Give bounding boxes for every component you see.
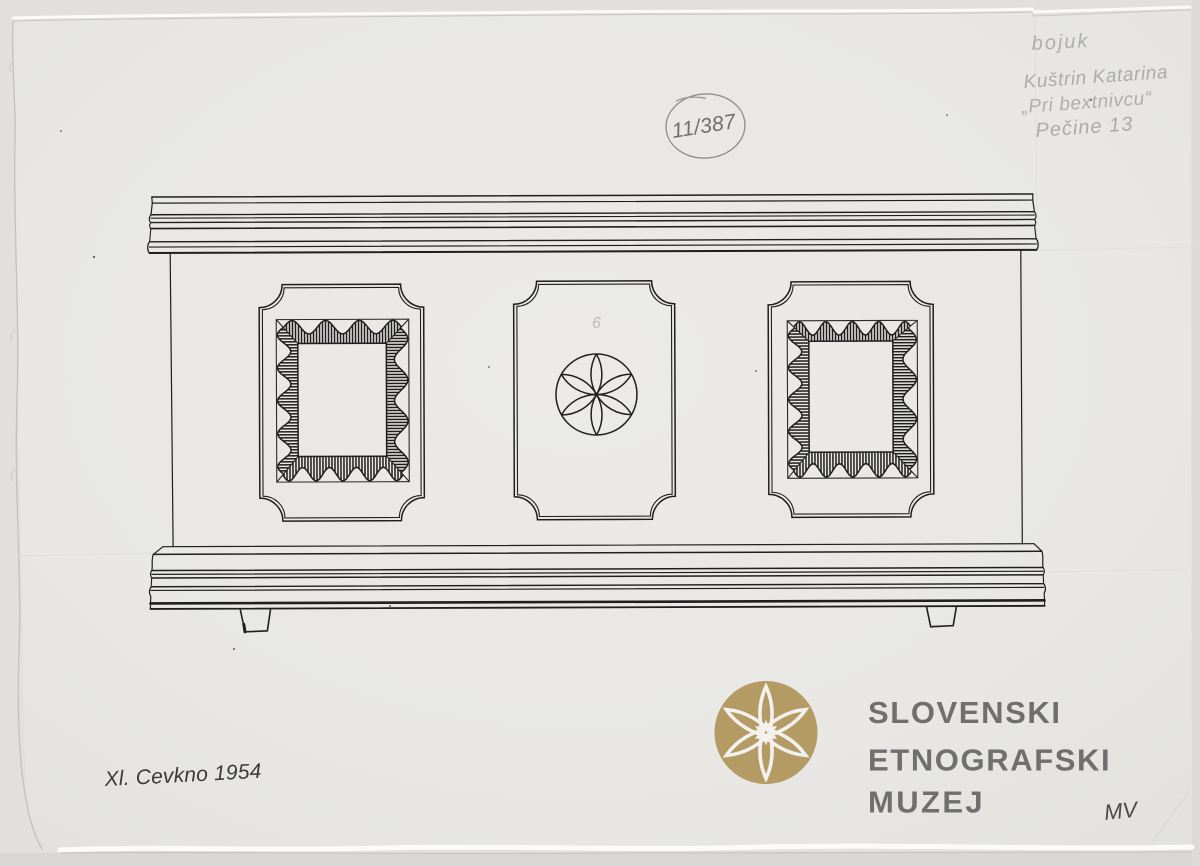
svg-text:MUZEJ: MUZEJ: [868, 785, 985, 820]
svg-text:SLOVENSKI: SLOVENSKI: [868, 695, 1062, 730]
svg-text:MV: MV: [1103, 796, 1141, 825]
svg-text:bojuk: bojuk: [1031, 30, 1090, 55]
svg-text:ETNOGRAFSKI: ETNOGRAFSKI: [868, 743, 1111, 778]
svg-text:6: 6: [592, 315, 601, 332]
